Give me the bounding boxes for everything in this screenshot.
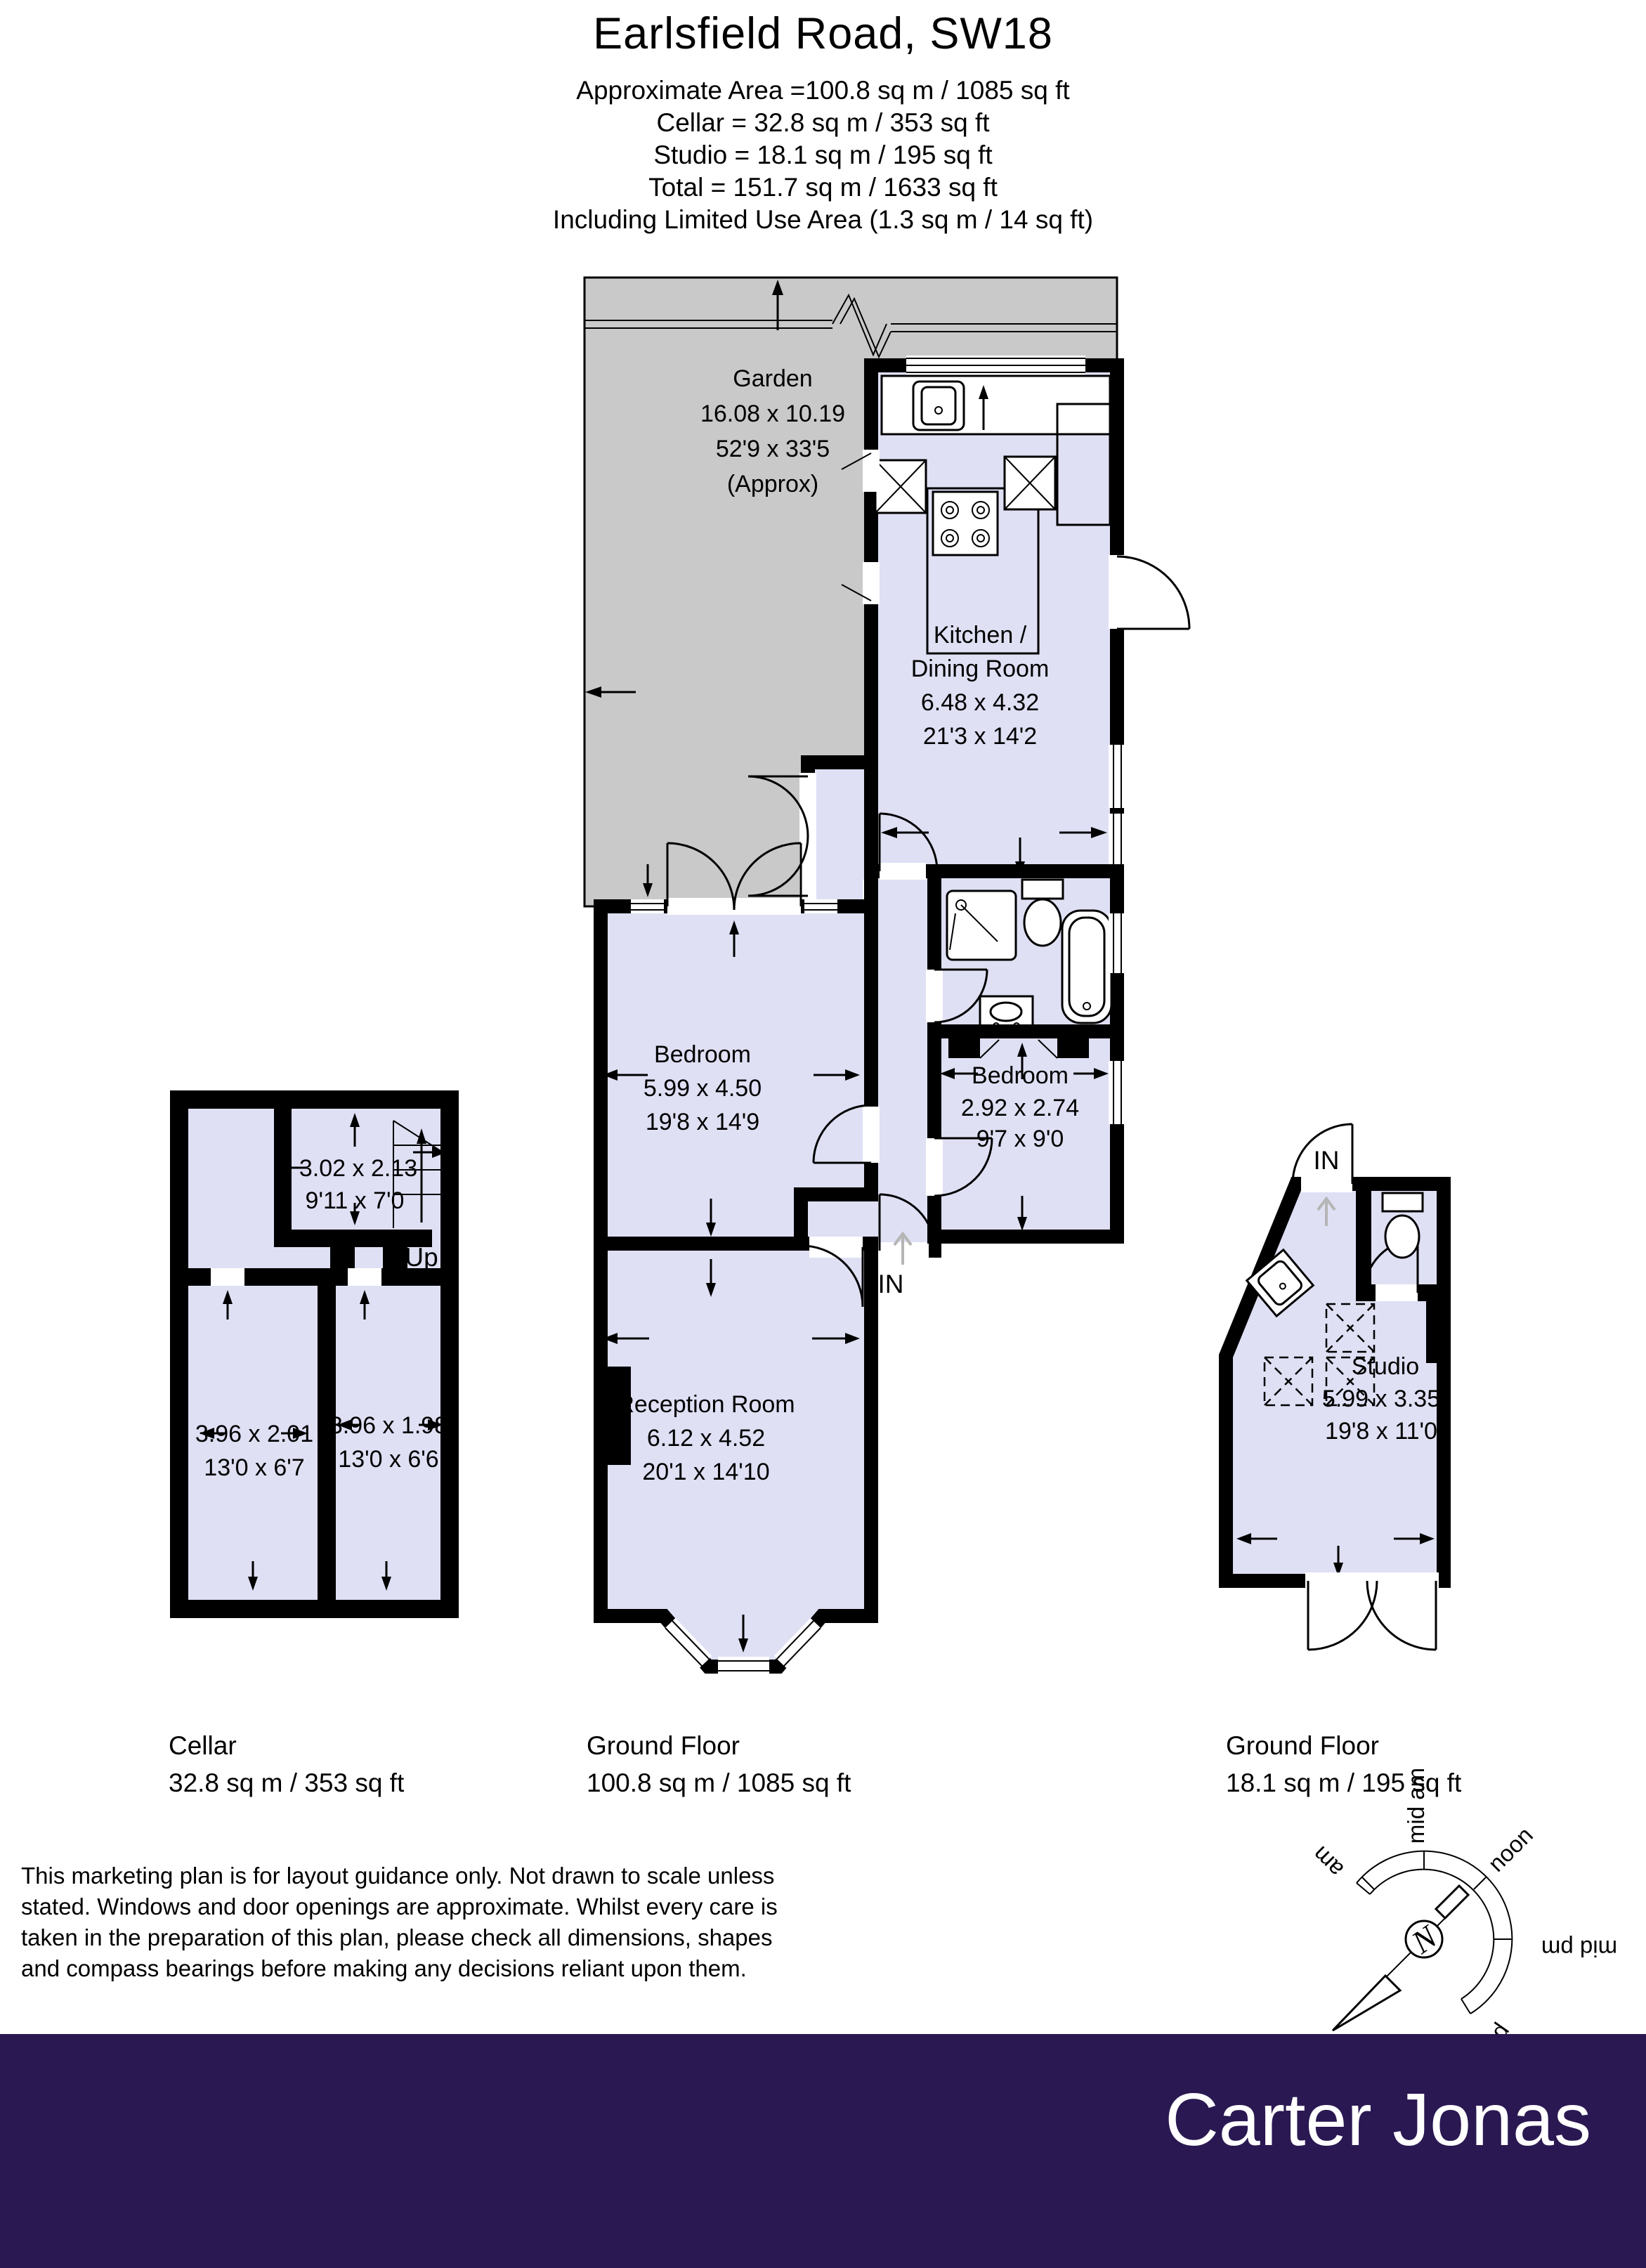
cellar-caption-label: Cellar: [169, 1727, 404, 1764]
ground-floor-caption-label: Ground Floor: [587, 1727, 851, 1764]
kitchen-window-icon: [1109, 745, 1125, 868]
bedroom1-name: Bedroom: [654, 1041, 751, 1068]
bedroom2-name: Bedroom: [972, 1062, 1069, 1089]
bathroom: [926, 838, 1125, 1031]
studio-floor-caption: Ground Floor 18.1 sq m / 195 sq ft: [1226, 1727, 1461, 1801]
kitchen-name1: Kitchen /: [934, 622, 1027, 649]
brand-logo: Carter Jonas: [1165, 2078, 1591, 2163]
ground-floor-caption: Ground Floor 100.8 sq m / 1085 sq ft: [587, 1727, 851, 1801]
reception-name: Reception Room: [617, 1391, 795, 1418]
disclaimer-line: and compass bearings before making any d…: [21, 1953, 778, 1984]
cellar-caption: Cellar 32.8 sq m / 353 sq ft: [169, 1727, 404, 1801]
kitchen-dim-ft: 21'3 x 14'2: [923, 723, 1037, 750]
studio-wall: [1356, 1191, 1371, 1296]
hob-icon: [933, 492, 998, 555]
reception-room: Reception Room 6.12 x 4.52 20'1 x 14'10: [601, 1199, 871, 1676]
cellar-right-dim-ft: 13'0 x 6'6: [338, 1446, 438, 1473]
garden-dim-m: 16.08 x 10.19: [700, 400, 845, 427]
compass: N am mid am noon mid pm pm: [1307, 1768, 1618, 2061]
disclaimer-line: This marketing plan is for layout guidan…: [21, 1860, 778, 1891]
bathroom-window-icon: [1109, 913, 1125, 973]
kitchen-name2: Dining Room: [911, 656, 1050, 682]
cellar-left-dim-ft: 13'0 x 6'7: [204, 1454, 304, 1481]
studio-pier: [1426, 1296, 1446, 1363]
cellar-top-dim-m: 3.02 x 2.13: [299, 1155, 417, 1182]
bath-icon: [1062, 911, 1111, 1023]
bedroom-2: Bedroom 2.92 x 2.74 9'7 x 9'0: [926, 1031, 1125, 1237]
cellar-plan: Up 3.02 x 2.13 9'11 x 7'0: [179, 1100, 450, 1609]
appliance-icon: [1005, 457, 1055, 509]
reception-dim-m: 6.12 x 4.52: [647, 1425, 765, 1452]
studio-dim-m: 5.99 x 3.35: [1322, 1386, 1440, 1412]
cellar-wall: [318, 1286, 336, 1609]
wardrobe-pier: [1057, 1031, 1089, 1058]
bedroom1-dim-m: 5.99 x 4.50: [644, 1075, 762, 1102]
kitchen-dim-m: 6.48 x 4.32: [921, 689, 1039, 716]
studio-dim-ft: 19'8 x 11'0: [1325, 1418, 1437, 1445]
studio-plan: Studio 5.99 x 3.35 19'8 x 11'0: [1226, 1124, 1446, 1650]
garden-approx: (Approx): [727, 471, 818, 497]
sink-icon: [913, 382, 964, 430]
kitchen-side-door-icon: [1109, 555, 1189, 629]
cellar-right-dim-m: 3.96 x 1.98: [329, 1412, 448, 1439]
toilet-icon: [1022, 880, 1063, 946]
cellar-caption-area: 32.8 sq m / 353 sq ft: [169, 1764, 404, 1801]
cellar-opening: [211, 1268, 244, 1286]
studio-french-doors-icon: [1305, 1572, 1439, 1650]
garden-dim-ft: 52'9 x 33'5: [716, 436, 830, 462]
shower-icon: [947, 891, 1016, 960]
bedroom2-dim-m: 2.92 x 2.74: [961, 1095, 1079, 1121]
studio-floor-caption-label: Ground Floor: [1226, 1727, 1461, 1764]
compass-needle-icon: N: [1333, 1886, 1468, 2031]
wc-opening: [1376, 1284, 1418, 1301]
studio-toilet-icon: [1383, 1193, 1423, 1258]
wardrobe-pier: [948, 1031, 980, 1058]
compass-label-midpm: mid pm: [1541, 1936, 1617, 1962]
studio-in-label: IN: [1314, 1146, 1340, 1175]
garden-name: Garden: [733, 365, 812, 392]
cellar-left-dim-m: 3.96 x 2.01: [195, 1421, 313, 1447]
disclaimer: This marketing plan is for layout guidan…: [21, 1860, 778, 1984]
reception-dim-ft: 20'1 x 14'10: [642, 1459, 769, 1485]
cellar-top-dim-ft: 9'11 x 7'0: [306, 1187, 405, 1214]
cellar-opening: [348, 1268, 381, 1286]
bedroom2-window-icon: [1109, 1061, 1125, 1124]
up-label: Up: [405, 1243, 438, 1272]
house-in-label: IN: [878, 1270, 904, 1298]
kitchen-dining-room: Kitchen / Dining Room 6.48 x 4.32 21'3 x…: [842, 356, 1189, 871]
compass-label-am: am: [1307, 1842, 1349, 1883]
studio-name: Studio: [1352, 1353, 1419, 1380]
brand-footer: Carter Jonas: [0, 2034, 1646, 2268]
bedroom-1: Bedroom 5.99 x 4.50 19'8 x 14'9: [601, 843, 880, 1244]
cellar-wall: [274, 1109, 292, 1242]
kitchen-opening: [880, 863, 926, 880]
appliance-icon: [875, 460, 926, 513]
disclaimer-line: stated. Windows and door openings are ap…: [21, 1891, 778, 1922]
ground-floor-caption-area: 100.8 sq m / 1085 sq ft: [587, 1764, 851, 1801]
studio-floor-caption-area: 18.1 sq m / 195 sq ft: [1226, 1764, 1461, 1801]
bedroom1-dim-ft: 19'8 x 14'9: [646, 1109, 759, 1135]
compass-label-noon: noon: [1483, 1822, 1538, 1877]
disclaimer-line: taken in the preparation of this plan, p…: [21, 1922, 778, 1953]
kitchen-window-icon: [906, 356, 1085, 375]
